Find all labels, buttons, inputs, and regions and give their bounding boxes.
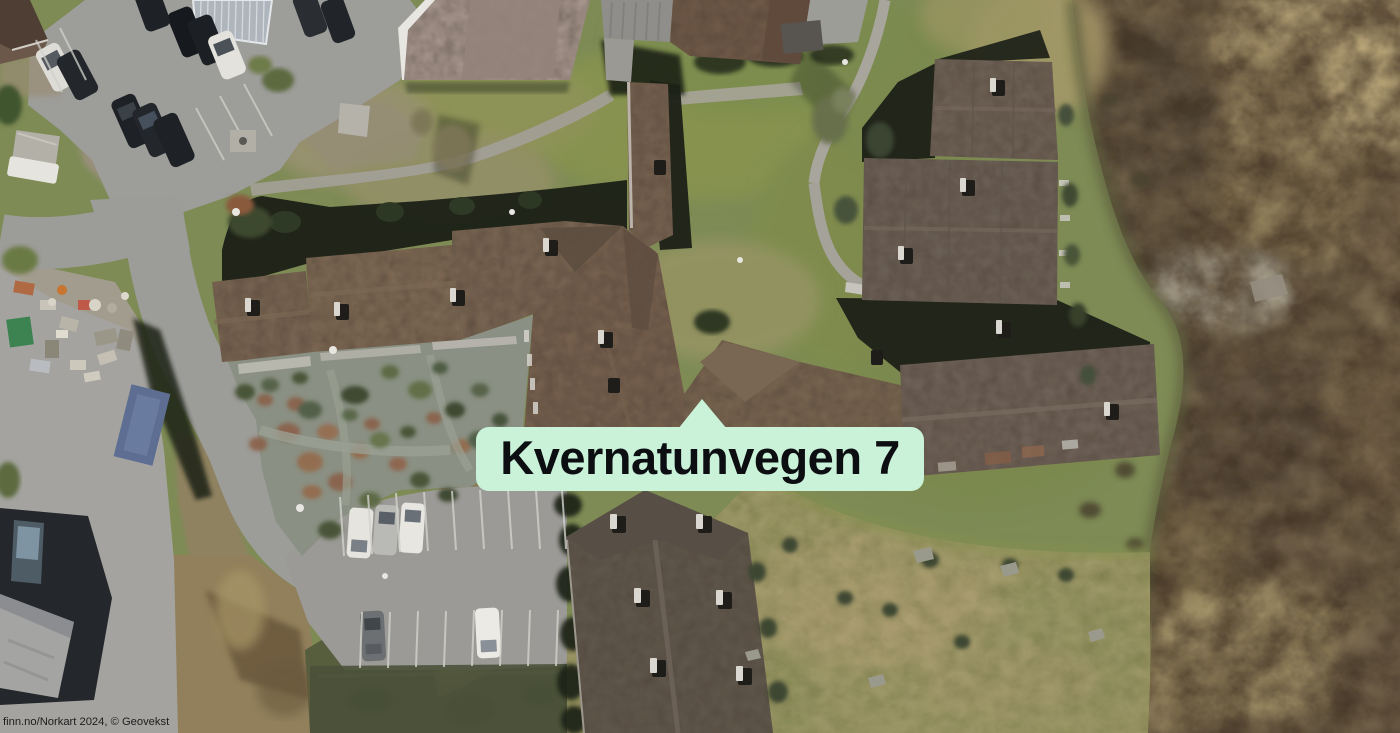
svg-text:Kvernatunvegen 7: Kvernatunvegen 7 xyxy=(500,431,899,484)
svg-text:finn.no/Norkart 2024, © Geovek: finn.no/Norkart 2024, © Geovekst xyxy=(3,716,170,728)
